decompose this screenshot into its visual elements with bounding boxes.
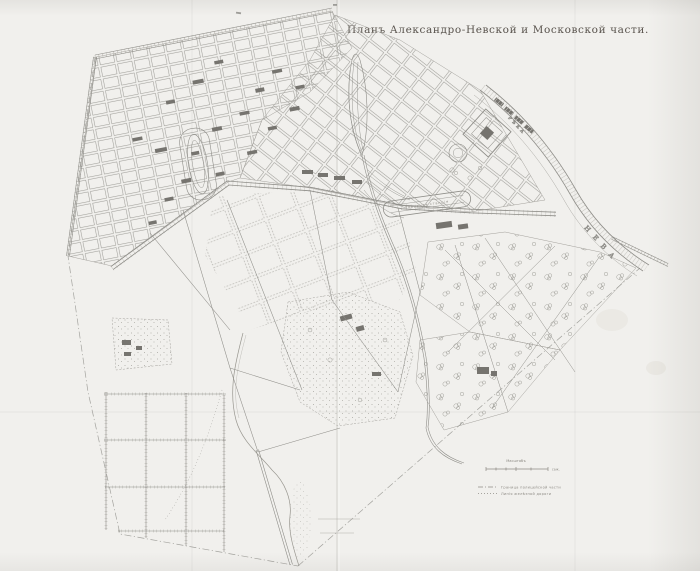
map-canvas: Планъ Александро-Невской и Московской ча… [0,0,700,571]
paper-stain [596,309,628,331]
map-title: Планъ Александро-Невской и Московской ча… [347,24,649,36]
marsh-stipple [289,482,311,558]
scale-label: Масштабъ [506,459,526,463]
paper-stain [646,361,666,375]
legend-item-boundary-label: Граница полицейской части [501,486,561,490]
legend-item-railway-label: Линія желѣзной дороги [501,492,551,496]
garden-west [112,318,172,370]
scanned-map-page: Планъ Александро-Невской и Московской ча… [0,0,700,571]
scale-unit: саж. [552,468,560,472]
